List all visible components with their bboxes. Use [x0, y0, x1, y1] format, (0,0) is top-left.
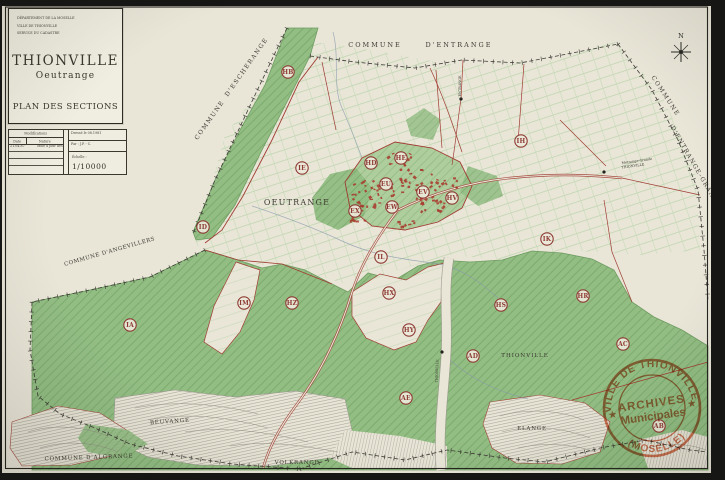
section-marker-hy: HY — [403, 324, 415, 336]
scan-edge-bottom — [0, 473, 725, 480]
plan-type-label: PLAN DES SECTIONS — [9, 102, 122, 112]
section-code-ab: AB — [653, 423, 664, 430]
drawn-date-label: Dressé le 08.1981 — [71, 131, 101, 135]
village-building — [397, 221, 400, 224]
poi-dot — [440, 350, 443, 353]
village-building — [376, 189, 378, 191]
section-marker-ad: AD — [467, 350, 479, 362]
map-label-d-entrange: D'ENTRANGE — [426, 41, 493, 49]
section-code-hx: HX — [384, 290, 395, 297]
scale-label: Échelle : — [72, 155, 87, 159]
section-code-id: ID — [199, 224, 207, 231]
revision-table: Modifications Date Nature 21.04.87 Mise … — [8, 129, 127, 175]
nature-column-label: Nature — [39, 139, 51, 143]
modification-row-empty — [9, 166, 63, 174]
village-building — [401, 185, 404, 187]
village-building — [401, 191, 404, 193]
map-title: THIONVILLE — [9, 53, 122, 69]
village-building — [437, 209, 439, 211]
village-building — [378, 202, 381, 204]
modifications-column: Modifications Date Nature 21.04.87 Mise … — [9, 130, 64, 174]
section-code-ex: EX — [350, 208, 360, 215]
modification-row-nature: Mise à jour des sections et lieux-dits — [37, 145, 63, 148]
agency-line-1: DÉPARTEMENT DE LA MOSELLE — [17, 16, 75, 20]
section-code-ih: IH — [517, 138, 526, 145]
village-building — [444, 180, 446, 182]
section-code-hz: HZ — [287, 300, 298, 307]
section-marker-hx: HX — [383, 287, 395, 299]
modifications-header: Modifications — [9, 130, 63, 138]
village-building — [400, 169, 403, 172]
section-code-hs: HS — [496, 302, 506, 309]
section-code-ae: AE — [400, 395, 411, 402]
village-building — [400, 226, 404, 229]
agency-line-2: VILLE DE THIONVILLE — [17, 24, 75, 28]
section-marker-hb: HB — [282, 66, 294, 78]
section-code-im: IM — [239, 300, 249, 307]
village-building — [452, 184, 455, 187]
poi-dot — [602, 170, 605, 173]
village-building — [432, 200, 435, 202]
title-block: DÉPARTEMENT DE LA MOSELLE VILLE DE THION… — [8, 8, 123, 124]
scan-edge-right — [711, 0, 725, 480]
scale-cell: Échelle : 1/10000 — [69, 152, 126, 174]
village-building — [380, 197, 382, 199]
section-marker-ie: IE — [296, 162, 308, 174]
agency-line-3: SERVICE DU CADASTRE — [17, 31, 75, 35]
section-marker-id: ID — [197, 221, 209, 233]
section-marker-eu: EU — [380, 178, 392, 190]
map-label-commune: COMMUNE — [348, 41, 402, 49]
map-label-thionville: THIONVILLE — [435, 359, 440, 383]
section-code-ia: IA — [126, 322, 134, 329]
section-code-hv: HV — [447, 195, 458, 202]
section-marker-il: IL — [375, 251, 387, 263]
section-code-ev: EV — [418, 189, 428, 196]
village-building — [356, 220, 359, 222]
drawn-by-label: Par : J.P. - C. — [71, 142, 91, 146]
modifications-header-label: Modifications — [25, 132, 48, 136]
village-building — [416, 184, 419, 186]
modification-row-empty — [9, 159, 63, 166]
agency-lines: DÉPARTEMENT DE LA MOSELLE VILLE DE THION… — [17, 16, 122, 39]
section-marker-ik: IK — [541, 233, 553, 245]
section-code-hb: HB — [282, 69, 293, 76]
map-label-thionville: THIONVILLE — [501, 353, 548, 359]
section-code-il: IL — [377, 254, 385, 261]
map-label-elange: ELANGE — [517, 426, 547, 432]
village-building — [453, 177, 456, 179]
section-marker-ia: IA — [124, 319, 136, 331]
section-marker-ih: IH — [515, 135, 527, 147]
section-code-ad: AD — [467, 353, 478, 360]
section-code-hr: HR — [577, 293, 589, 300]
map-label-volkrange: VOLKRANGE — [274, 460, 320, 466]
village-building — [412, 220, 415, 222]
section-marker-im: IM — [238, 297, 250, 309]
modifications-subheader: Date Nature — [9, 138, 63, 145]
map-subtitle: Oeutrange — [9, 71, 122, 81]
modification-row-empty — [9, 152, 63, 159]
section-code-ie: IE — [298, 165, 306, 172]
section-code-hy: HY — [404, 327, 415, 334]
drawn-by-cell: Par : J.P. - C. — [69, 141, 126, 152]
section-marker-hz: HZ — [286, 297, 298, 309]
modification-row-date: 21.04.87 — [10, 145, 25, 148]
section-marker-ev: EV — [417, 186, 429, 198]
section-marker-hv: HV — [446, 192, 458, 204]
section-code-eu: EU — [381, 181, 392, 188]
scan-edge-top — [0, 0, 725, 6]
village-building — [366, 205, 368, 207]
scanned-map-page: COMMUNED'ENTRANGECOMMUNED'ESCHERANGECOMM… — [0, 0, 725, 480]
section-marker-ew: EW — [386, 201, 398, 213]
drawn-date-cell: Dressé le 08.1981 — [69, 130, 126, 141]
section-code-ew: EW — [386, 204, 398, 211]
section-marker-hd: HD — [365, 157, 377, 169]
compass-north-label: N — [678, 32, 684, 40]
village-building — [378, 188, 380, 190]
section-code-ik: IK — [543, 236, 552, 243]
section-marker-ac: AC — [617, 338, 629, 350]
section-marker-he: HE — [395, 152, 407, 164]
poi-dot — [459, 97, 462, 100]
modification-row: 21.04.87 Mise à jour des sections et lie… — [9, 145, 63, 152]
section-marker-ae: AE — [400, 392, 412, 404]
title-block-header: DÉPARTEMENT DE LA MOSELLE VILLE DE THION… — [9, 9, 122, 39]
drawing-info-column: Dressé le 08.1981 Par : J.P. - C. Échell… — [69, 130, 126, 174]
date-column-label: Date — [14, 139, 22, 143]
section-code-ac: AC — [617, 341, 628, 348]
village-building — [360, 205, 363, 207]
village-building — [358, 202, 361, 204]
map-label-entrange: ENTRANGE — [458, 75, 462, 96]
section-code-hd: HD — [365, 160, 376, 167]
village-building — [443, 203, 445, 205]
map-label-oeutrange: OEUTRANGE — [264, 198, 330, 207]
scale-value: 1/10000 — [72, 162, 107, 171]
village-building — [408, 186, 411, 188]
section-code-he: HE — [396, 155, 407, 162]
section-marker-hs: HS — [495, 299, 507, 311]
section-marker-ex: EX — [349, 205, 361, 217]
section-marker-hr: HR — [577, 290, 590, 302]
scan-edge-left — [0, 0, 2, 480]
